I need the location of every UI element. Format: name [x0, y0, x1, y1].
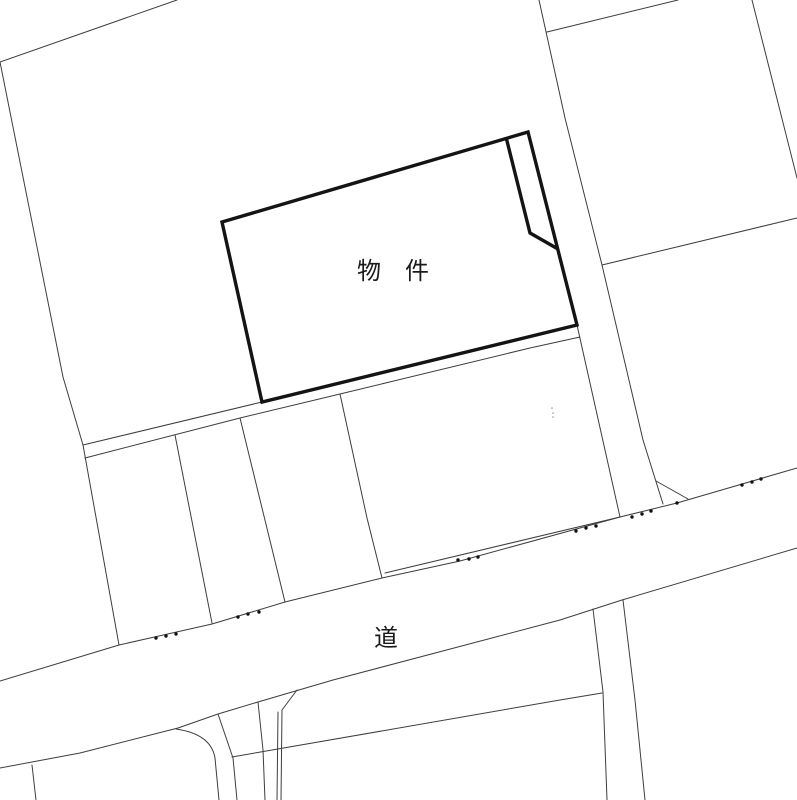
parcel-divider-3	[340, 394, 382, 578]
faint-mark-dot	[552, 412, 554, 414]
strip-lower-line	[85, 337, 580, 458]
survey-point-dot	[750, 480, 753, 483]
divider-under-property-corner	[577, 325, 620, 517]
lower-right-band-right-edge	[623, 600, 645, 800]
parcel-divider-2	[240, 418, 285, 602]
survey-point-dot	[594, 524, 597, 527]
bottom-left-divider	[32, 765, 36, 800]
survey-point-dot	[584, 526, 587, 529]
top-left-diagonal-boundary	[0, 0, 177, 62]
survey-point-dot	[236, 615, 239, 618]
survey-point-dot	[649, 509, 652, 512]
lane-rounded-corner	[176, 729, 219, 800]
lower-band-right-edge-a	[281, 690, 297, 800]
road-lower-edge	[0, 548, 797, 768]
survey-point-dot	[740, 483, 743, 486]
road-upper-edge	[0, 468, 797, 681]
survey-point-dot	[574, 529, 577, 532]
map-canvas: 物 件道	[0, 0, 797, 800]
survey-point-dot	[759, 477, 762, 480]
top-right-parcel-top-edge	[547, 0, 678, 32]
cadastral-map: 物 件道	[0, 0, 797, 800]
survey-point-dot	[640, 512, 643, 515]
road-label: 道	[374, 624, 398, 652]
survey-point-dot	[456, 558, 459, 561]
survey-point-dot	[630, 515, 633, 518]
survey-point-dot	[675, 501, 678, 504]
top-right-parcel-right-edge	[752, 0, 797, 178]
survey-point-dot	[246, 612, 249, 615]
survey-point-dot	[257, 610, 260, 613]
strip-upper-line	[83, 402, 262, 445]
faint-mark-dot	[551, 407, 553, 409]
lower-right-band-left-edge	[593, 609, 607, 800]
property-label: 物 件	[357, 257, 429, 285]
survey-point-dot	[154, 636, 157, 639]
parcel-divider-1	[175, 435, 212, 623]
converging-line-above-road	[385, 517, 620, 573]
faint-mark-dot	[552, 416, 554, 418]
survey-point-dot	[174, 632, 177, 635]
right-parcel-cross-diagonal	[602, 218, 797, 265]
survey-point-dot	[467, 557, 470, 560]
lower-band-right-edge-b	[277, 712, 278, 800]
survey-point-dot	[476, 555, 479, 558]
survey-point-dot	[164, 634, 167, 637]
left-parcel-boundary	[0, 62, 119, 645]
